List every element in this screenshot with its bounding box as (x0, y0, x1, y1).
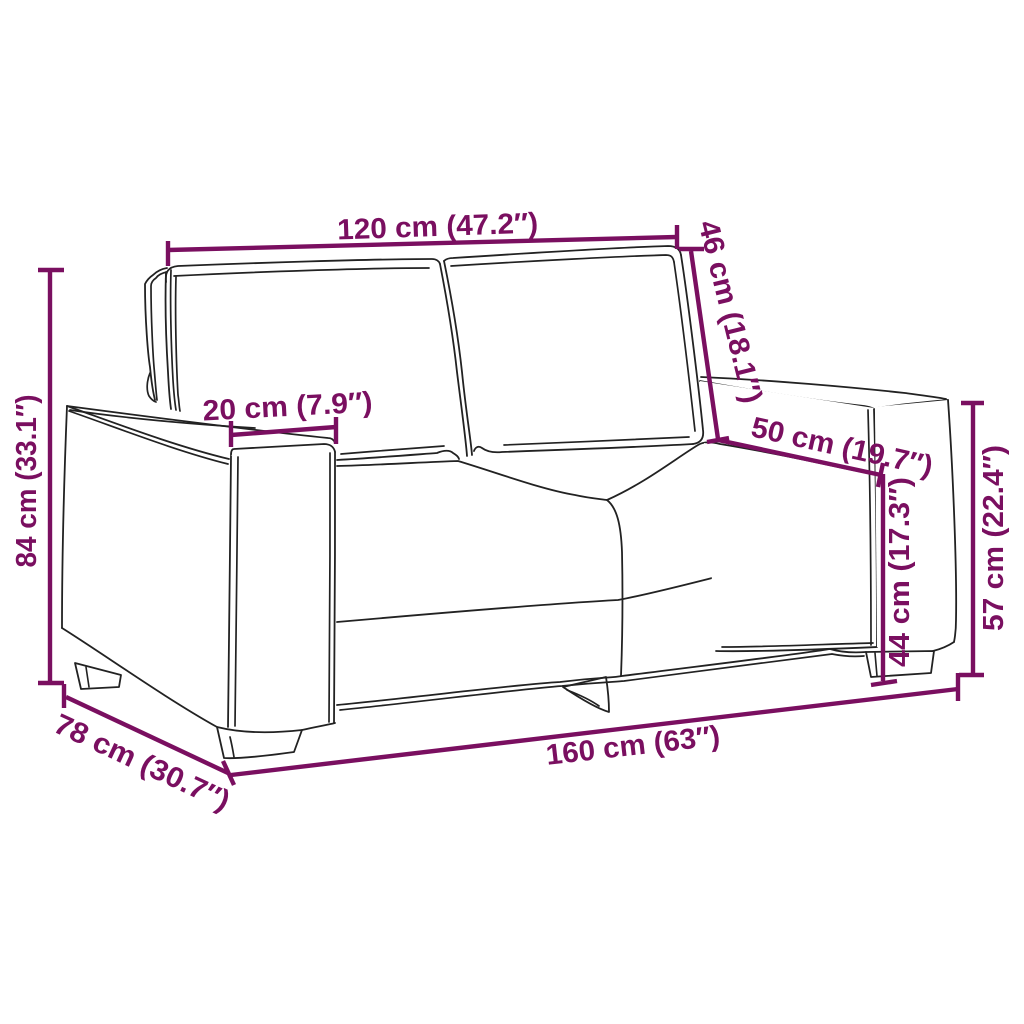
svg-text:84 cm (33.1″): 84 cm (33.1″) (11, 395, 43, 568)
svg-text:57 cm (22.4″): 57 cm (22.4″) (978, 445, 1010, 631)
svg-text:44 cm (17.3″): 44 cm (17.3″) (884, 477, 916, 667)
